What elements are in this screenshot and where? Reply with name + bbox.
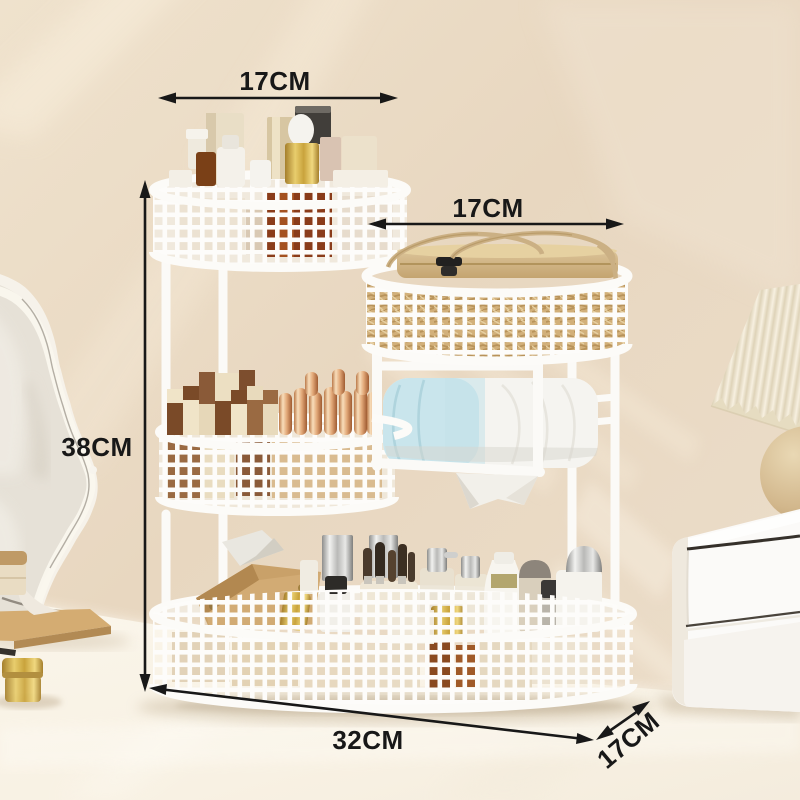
svg-text:38CM: 38CM	[61, 432, 132, 462]
svg-text:17CM: 17CM	[239, 66, 310, 96]
svg-text:17CM: 17CM	[452, 193, 523, 223]
svg-text:32CM: 32CM	[332, 725, 403, 755]
